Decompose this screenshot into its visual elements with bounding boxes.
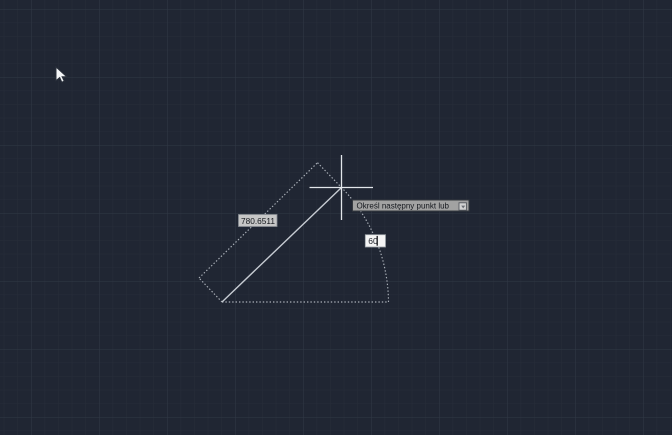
svg-text:Określ następny punkt lub: Określ następny punkt lub xyxy=(357,202,450,211)
svg-text:780.6511: 780.6511 xyxy=(241,216,275,226)
